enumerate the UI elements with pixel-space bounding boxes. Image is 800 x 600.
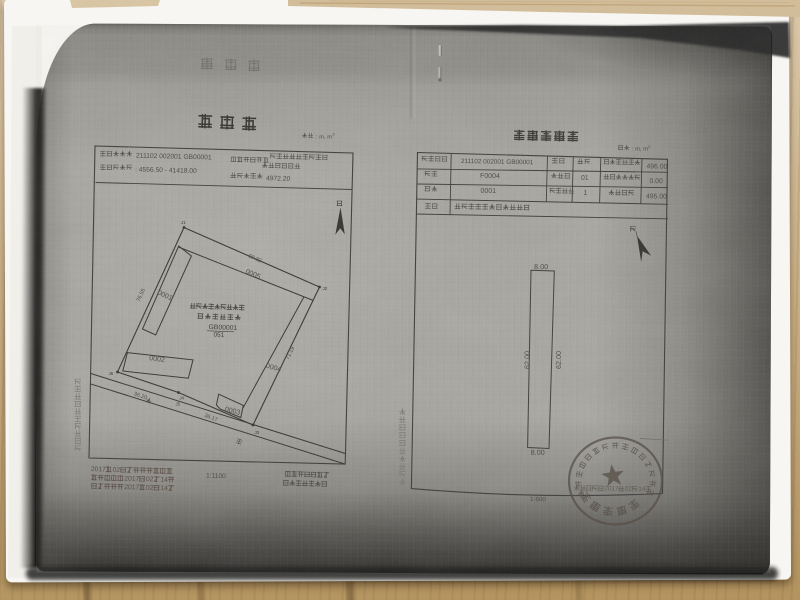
svg-text:J4: J4 bbox=[180, 396, 185, 401]
svg-text:02: 02 bbox=[146, 476, 154, 483]
svg-text:14: 14 bbox=[160, 485, 168, 492]
svg-text:02: 02 bbox=[625, 486, 633, 493]
svg-text:8.00: 8.00 bbox=[534, 262, 548, 271]
svg-text:J5: J5 bbox=[176, 402, 181, 407]
svg-text:01: 01 bbox=[581, 175, 589, 182]
svg-text:: m, m: : m, m bbox=[632, 147, 648, 153]
svg-text:051: 051 bbox=[213, 332, 224, 339]
svg-text:2017: 2017 bbox=[124, 484, 139, 491]
svg-text:0.00: 0.00 bbox=[649, 178, 663, 185]
svg-text:211102 002001 GB00001: 211102 002001 GB00001 bbox=[461, 158, 534, 166]
svg-text:02: 02 bbox=[112, 467, 120, 474]
svg-text:8.00: 8.00 bbox=[530, 448, 544, 457]
svg-text:02: 02 bbox=[146, 485, 154, 492]
svg-text:4972.20: 4972.20 bbox=[266, 175, 291, 183]
svg-text:0001: 0001 bbox=[480, 188, 496, 195]
svg-text:1:1100: 1:1100 bbox=[206, 473, 226, 481]
svg-text:J2: J2 bbox=[323, 286, 328, 291]
svg-text:2017: 2017 bbox=[124, 475, 139, 482]
svg-text:: m, m: : m, m bbox=[316, 134, 332, 140]
svg-text:J3: J3 bbox=[255, 430, 260, 435]
svg-text:495.00: 495.00 bbox=[646, 193, 667, 200]
svg-text:J1: J1 bbox=[181, 220, 186, 225]
svg-text:14: 14 bbox=[160, 476, 168, 483]
svg-text:62.00: 62.00 bbox=[554, 351, 563, 369]
svg-text:J6: J6 bbox=[109, 371, 114, 376]
svg-text:14: 14 bbox=[638, 486, 646, 493]
svg-text:1: 1 bbox=[583, 190, 587, 197]
svg-text:2017: 2017 bbox=[604, 485, 619, 492]
svg-text:F0004: F0004 bbox=[480, 173, 500, 180]
svg-text:62.00: 62.00 bbox=[523, 351, 532, 369]
svg-text:496.00: 496.00 bbox=[646, 163, 667, 170]
svg-text:1:600: 1:600 bbox=[530, 496, 547, 503]
svg-text:2017: 2017 bbox=[91, 466, 106, 473]
